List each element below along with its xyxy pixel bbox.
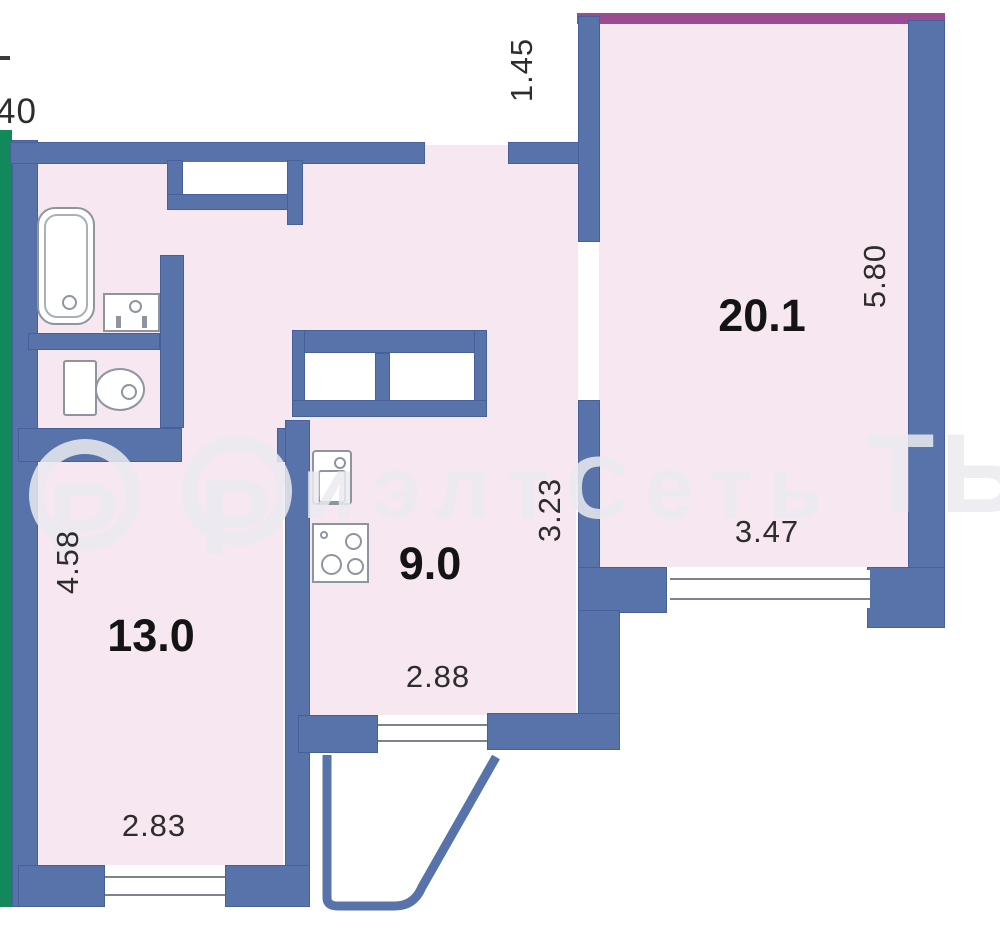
entry-stub-wall xyxy=(508,142,588,164)
left-wall xyxy=(12,140,38,907)
kitchen-area-label: 9.0 xyxy=(350,538,510,590)
dim-kitchen-height: 3.23 xyxy=(529,464,571,556)
dim-top-left: 40 xyxy=(0,92,66,132)
kitchen-closet-top-bar xyxy=(292,330,487,353)
kitchen-sink-icon xyxy=(312,450,352,505)
green-strip xyxy=(0,130,12,907)
hall-closet-interior xyxy=(183,162,287,194)
bathroom-right-wall xyxy=(160,255,184,428)
kitchen-closet-bottom-bar xyxy=(292,400,487,417)
floor-plan: Р Р иэлтСеть ТЬ 40 1.45 20.1 5.80 3.47 3… xyxy=(0,0,1000,942)
dim-room13-width: 2.83 xyxy=(74,808,234,844)
toilet-bowl-icon xyxy=(95,368,145,411)
dim-entry: 1.45 xyxy=(500,25,544,115)
room-13-top-wall xyxy=(18,428,182,462)
bathtub-icon xyxy=(37,207,95,325)
room-20-bottom-right-pier xyxy=(867,567,945,628)
room-20-top-wall xyxy=(577,13,945,24)
room-20-left-wall-upper xyxy=(578,16,600,242)
balcony-outline xyxy=(300,740,520,920)
bathroom-sink-icon xyxy=(103,293,160,332)
dim-room20-height: 5.80 xyxy=(854,229,896,323)
room-20-right-wall xyxy=(908,20,945,628)
room-20-window xyxy=(670,570,870,608)
kitchen-closet-right-bar xyxy=(474,330,487,407)
room-13-bottom-wall-left xyxy=(18,865,105,907)
toilet-tank-icon xyxy=(63,360,97,416)
dim-room20-width: 3.47 xyxy=(687,514,847,550)
room-20-bottom-left-pier xyxy=(578,567,667,613)
entry-opening xyxy=(425,145,508,190)
kitchen-closet-pane-left xyxy=(305,353,375,400)
kitchen-closet-pane-right xyxy=(390,353,474,400)
hall-closet-right-bar xyxy=(287,160,303,225)
room-13-area-label: 13.0 xyxy=(71,610,231,662)
dim-room13-height: 4.58 xyxy=(47,515,89,609)
room-20-left-wall-lower xyxy=(578,400,600,573)
tick-mark xyxy=(0,56,10,60)
bathroom-wc-divider-wall xyxy=(28,333,160,350)
dim-kitchen-width: 2.88 xyxy=(358,659,518,695)
room-13-window xyxy=(105,868,225,904)
room-13-bottom-wall-right xyxy=(225,865,310,907)
hall-closet-bottom-bar xyxy=(167,194,303,210)
room-20-area-label: 20.1 xyxy=(682,290,842,342)
top-wall xyxy=(10,142,425,164)
